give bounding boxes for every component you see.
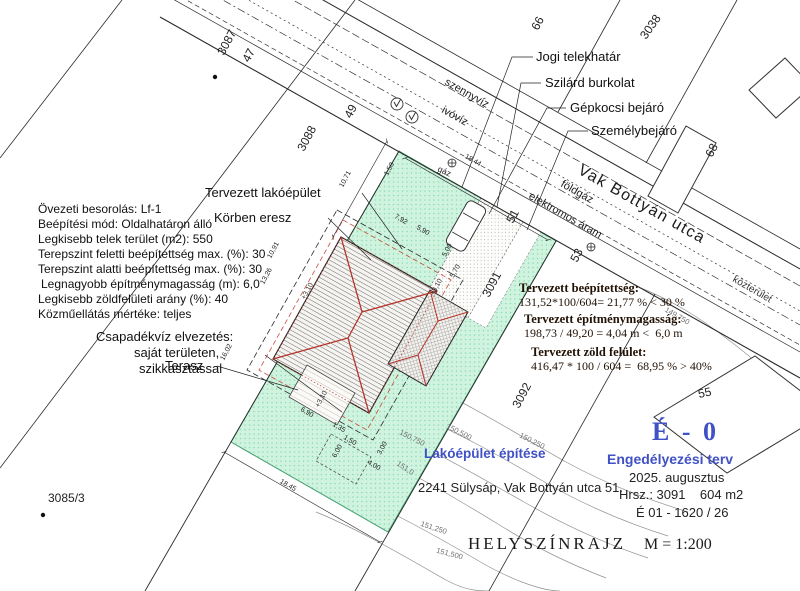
valve-icon bbox=[406, 111, 418, 123]
site-plan-drawing: Vak Bottyán utca szennyvíz ivóvíz földgá… bbox=[0, 0, 800, 591]
gas-point-icon bbox=[587, 243, 595, 251]
calc-height-value: 198,73 / 49,20 = 4,04 m < 6,0 m bbox=[524, 326, 683, 340]
zoning-line: Terepszint alatti beépítettség max. (%):… bbox=[38, 262, 262, 276]
calc-coverage-title: Tervezett beépítettség: bbox=[519, 281, 639, 295]
survey-point-dot bbox=[41, 513, 45, 517]
legend-gepkocsi-bejaro: Gépkocsi bejáró bbox=[570, 100, 664, 115]
drawing-reference: É 01 - 1620 / 26 bbox=[636, 505, 729, 520]
zoning-line: Legkisebb telek terület (m2): 550 bbox=[38, 232, 213, 246]
legend-szilard-burkolat: Szilárd burkolat bbox=[545, 75, 635, 90]
document-date: 2025. augusztus bbox=[629, 470, 725, 485]
survey-point-dot bbox=[213, 75, 217, 79]
parcel-number-3085-3: 3085/3 bbox=[48, 491, 85, 505]
zoning-line: Beépítési mód: Oldalhatáron álló bbox=[38, 217, 212, 231]
sheet-number: É - 0 bbox=[652, 417, 719, 446]
zoning-line: Terepszint feletti beépítettség max. (%)… bbox=[38, 247, 266, 261]
calc-coverage-value: 131,52*100/604= 21,77 % < 30 % bbox=[519, 295, 685, 309]
drawing-scale: M = 1:200 bbox=[644, 536, 712, 553]
terrace-label: Terasz bbox=[165, 358, 203, 373]
eaves-label: Körben eresz bbox=[214, 210, 291, 225]
zoning-line: Közműellátás mértéke: teljes bbox=[38, 307, 191, 321]
drainage-label-1: Csapadékvíz elvezetés: bbox=[96, 329, 233, 344]
zoning-line: Legkisebb zöldfelületi arány (%): 40 bbox=[38, 292, 228, 306]
legend-szemelybejaro: Személybejáró bbox=[591, 123, 677, 138]
calc-green-value: 416,47 * 100 / 604 = 68,95 % > 40% bbox=[531, 359, 712, 373]
parcel-reference: Hrsz.: 3091 604 m2 bbox=[619, 487, 743, 502]
house-label: Tervezett lakóépület bbox=[205, 185, 321, 200]
site-plan-page: Vak Bottyán utca szennyvíz ivóvíz földgá… bbox=[0, 0, 800, 591]
gas-point-icon bbox=[448, 159, 456, 167]
calc-height-title: Tervezett építménymagasság: bbox=[524, 312, 681, 326]
project-address: 2241 Sülysáp, Vak Bottyán utca 51. bbox=[418, 480, 623, 495]
zoning-line: Legnagyobb építménymagasság (m): 6,0 bbox=[41, 277, 260, 291]
project-title: Lakóépület építése bbox=[424, 446, 546, 461]
valve-icon bbox=[391, 98, 403, 110]
legend-jogi-telekhatar: Jogi telekhatár bbox=[536, 49, 621, 64]
calc-green-title: Tervezett zöld felület: bbox=[531, 345, 646, 359]
drawing-title: HELYSZÍNRAJZ bbox=[468, 534, 626, 553]
document-type: Engedélyezési terv bbox=[607, 451, 733, 467]
zoning-line: Övezeti besorolás: Lf-1 bbox=[38, 202, 162, 216]
